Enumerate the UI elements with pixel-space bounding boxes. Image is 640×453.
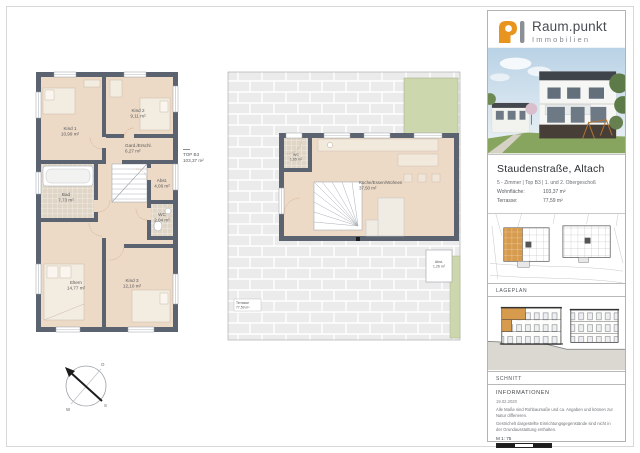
room-label: Gard./Erschl. bbox=[125, 143, 152, 148]
room-label: Abst. bbox=[157, 178, 167, 183]
scale-label: M 1: 75 bbox=[496, 436, 617, 441]
room-area: 7,73 m² bbox=[58, 198, 74, 203]
room-label: Terrasse bbox=[236, 301, 249, 305]
room-label: Küche/Essen/Wohnen bbox=[359, 180, 403, 185]
scale-bar-segment bbox=[515, 444, 533, 447]
room-label: Bad bbox=[62, 192, 71, 197]
project-info: Staudenstraße, Altach 5 - Zimmer | Top B… bbox=[488, 154, 625, 213]
disclaimer-note: Alle Maße sind Rohbaumaße und ca. Angabe… bbox=[496, 407, 617, 419]
planting-bed-top bbox=[404, 78, 458, 142]
dimension-tick bbox=[183, 149, 190, 150]
logo-r-shape bbox=[499, 21, 517, 43]
entry-marker bbox=[356, 237, 360, 241]
room-label: Eltern bbox=[70, 280, 82, 285]
room-label: Kind 3 bbox=[125, 278, 138, 283]
terrace-label: Terrasse 77,59 m² bbox=[234, 299, 261, 311]
compass-rose: O S W bbox=[58, 354, 114, 416]
information-heading: INFORMATIONEN bbox=[496, 390, 617, 396]
scale-bar bbox=[496, 443, 552, 448]
area-value: 77,59 m² bbox=[543, 198, 563, 204]
room-area: 12,10 m² bbox=[123, 284, 142, 289]
room-label: WC bbox=[293, 153, 299, 157]
brand-logo-icon bbox=[496, 19, 526, 45]
title-block-panel: Raum.punkt Immobilien bbox=[487, 10, 626, 442]
unit-annotation-line2: 103,37 m² bbox=[183, 158, 204, 164]
floorplan-upper-storey: Kind 1 10,99 m² Kind 2 9,11 m² Gard./Ers… bbox=[32, 68, 182, 338]
room-label: Kind 1 bbox=[63, 126, 76, 131]
room-area: 14,77 m² bbox=[67, 286, 86, 291]
compass-south: S bbox=[104, 403, 107, 408]
building-render-image bbox=[488, 47, 625, 154]
logo-i-bar bbox=[520, 21, 524, 43]
area-row: Wohnfläche: 103,37 m² bbox=[497, 189, 616, 195]
site-plan-caption: LAGEPLAN bbox=[488, 283, 625, 297]
area-label: Wohnfläche: bbox=[497, 189, 543, 195]
compass-east: O bbox=[101, 362, 105, 367]
brand-name: Raum.punkt bbox=[532, 19, 607, 34]
section-caption: SCHNITT bbox=[488, 371, 625, 385]
information-block: INFORMATIONEN 19.02.2020 Alle Maße sind … bbox=[488, 385, 625, 441]
room-area: 4,06 m² bbox=[154, 184, 170, 189]
area-row: Terrasse: 77,59 m² bbox=[497, 198, 616, 204]
area-value: 103,37 m² bbox=[543, 189, 566, 195]
project-title: Staudenstraße, Altach bbox=[497, 163, 616, 175]
compass-west: W bbox=[66, 407, 71, 412]
brand-logo: Raum.punkt Immobilien bbox=[488, 11, 625, 47]
room-label: WC bbox=[158, 212, 166, 217]
brand-subtitle: Immobilien bbox=[532, 35, 607, 44]
north-arrow bbox=[70, 372, 102, 401]
scale-bar-segment bbox=[497, 444, 515, 447]
room-area: 37,50 m² bbox=[359, 186, 377, 191]
section-drawing bbox=[488, 298, 625, 371]
floorplan-terrace-storey: Küche/Essen/Wohnen 37,50 m² WC 1,65 m² A… bbox=[226, 70, 462, 342]
plan-date: 19.02.2020 bbox=[496, 399, 617, 404]
room-area: 2,04 m² bbox=[154, 218, 170, 223]
site-plan-drawing bbox=[488, 213, 625, 284]
area-label: Terrasse: bbox=[497, 198, 543, 204]
scale-bar-segment bbox=[533, 444, 551, 447]
room-area: 6,27 m² bbox=[125, 149, 141, 154]
staircase bbox=[314, 182, 362, 230]
project-subtitle: 5 - Zimmer | Top B3 | 1. und 2. Obergesc… bbox=[497, 180, 616, 186]
room-area: 10,99 m² bbox=[61, 132, 80, 137]
room-area: 1,26 m² bbox=[433, 265, 446, 269]
unit-annotation: TOP B3 103,37 m² bbox=[183, 149, 204, 164]
staircase bbox=[112, 164, 147, 202]
room-area: 1,65 m² bbox=[290, 158, 303, 162]
room-label: Abst. bbox=[435, 260, 443, 264]
logo-r-counter bbox=[505, 25, 512, 32]
room-label: Kind 2 bbox=[131, 108, 144, 113]
disclaimer-note: Gestrichelt dargestellte Einrichtungsgeg… bbox=[496, 421, 617, 433]
room-area: 9,11 m² bbox=[130, 114, 146, 119]
room-area: 77,59 m² bbox=[236, 306, 250, 310]
